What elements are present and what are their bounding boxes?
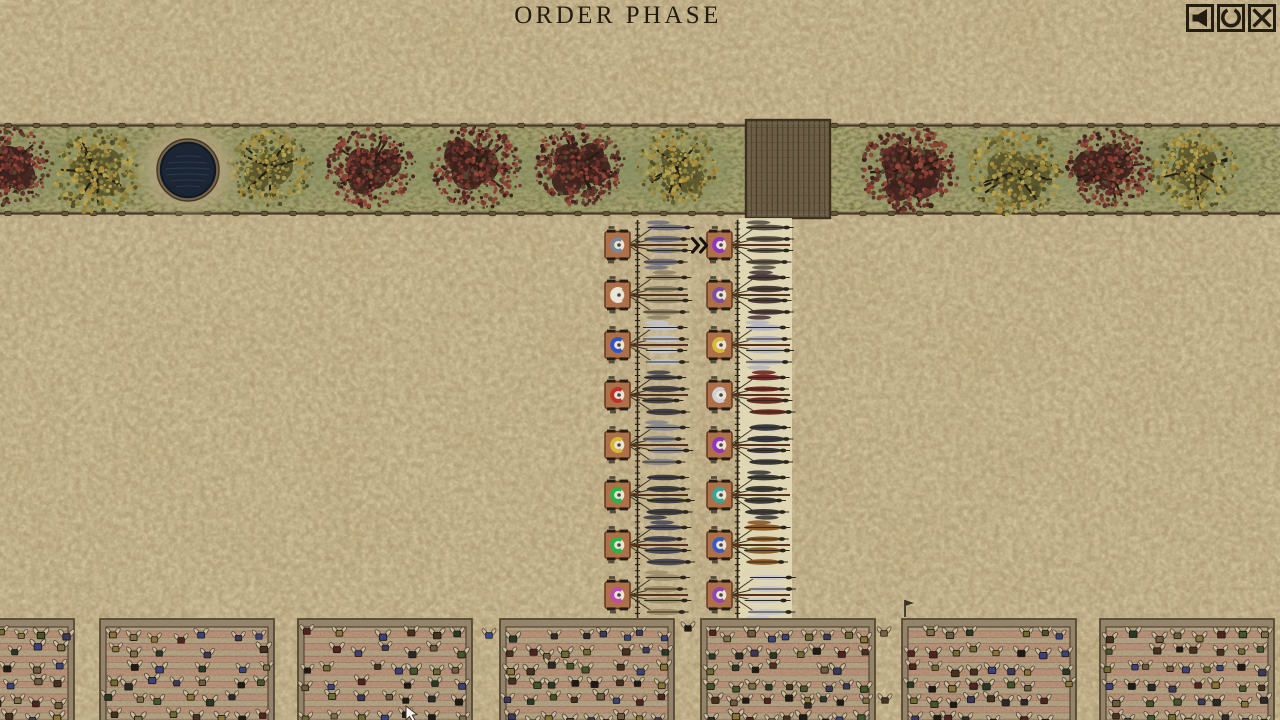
svg-text:ORDER PHASE: ORDER PHASE [514, 2, 722, 29]
